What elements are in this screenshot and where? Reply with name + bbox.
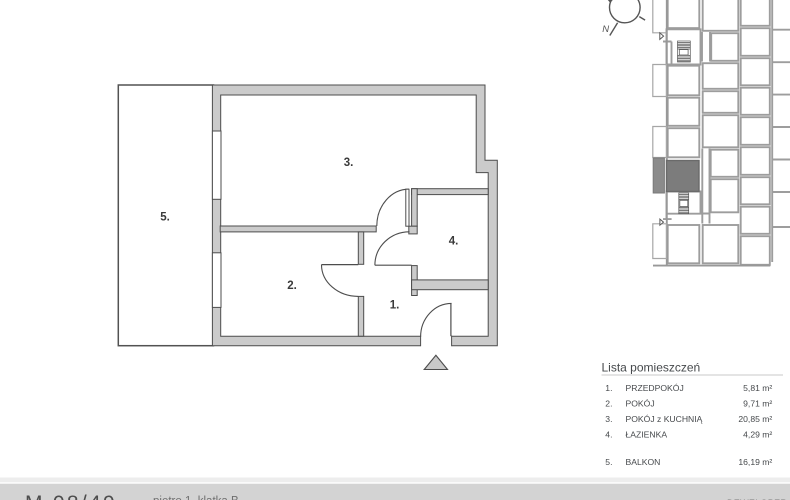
- svg-text:9,71 m²: 9,71 m²: [743, 398, 772, 408]
- svg-text:2.: 2.: [605, 398, 612, 408]
- svg-text:ŁAZIENKA: ŁAZIENKA: [626, 429, 668, 439]
- svg-text:N: N: [602, 24, 609, 35]
- svg-text:BALKON: BALKON: [626, 457, 661, 467]
- svg-text:3.: 3.: [344, 157, 354, 169]
- svg-text:POKÓJ z KUCHNIĄ: POKÓJ z KUCHNIĄ: [626, 414, 703, 424]
- svg-text:Lista pomieszczeń: Lista pomieszczeń: [602, 361, 701, 375]
- svg-text:20,85 m²: 20,85 m²: [738, 414, 772, 424]
- svg-text:3.: 3.: [605, 414, 612, 424]
- svg-text:PRZEDPOKÓJ: PRZEDPOKÓJ: [626, 383, 684, 393]
- svg-text:4.: 4.: [605, 429, 612, 439]
- svg-text:4,29 m²: 4,29 m²: [743, 429, 772, 439]
- svg-text:M 08/49: M 08/49: [25, 492, 117, 500]
- svg-text:4.: 4.: [449, 236, 459, 248]
- svg-text:5,81 m²: 5,81 m²: [743, 383, 772, 393]
- svg-text:POKÓJ: POKÓJ: [626, 398, 655, 408]
- svg-text:2.: 2.: [287, 280, 297, 292]
- svg-text:5.: 5.: [160, 212, 170, 224]
- svg-text:1.: 1.: [390, 300, 400, 312]
- svg-text:1.: 1.: [605, 383, 612, 393]
- svg-text:16,19 m²: 16,19 m²: [738, 457, 772, 467]
- svg-text:piętro 1, klatka B: piętro 1, klatka B: [153, 495, 239, 500]
- svg-text:5.: 5.: [605, 457, 612, 467]
